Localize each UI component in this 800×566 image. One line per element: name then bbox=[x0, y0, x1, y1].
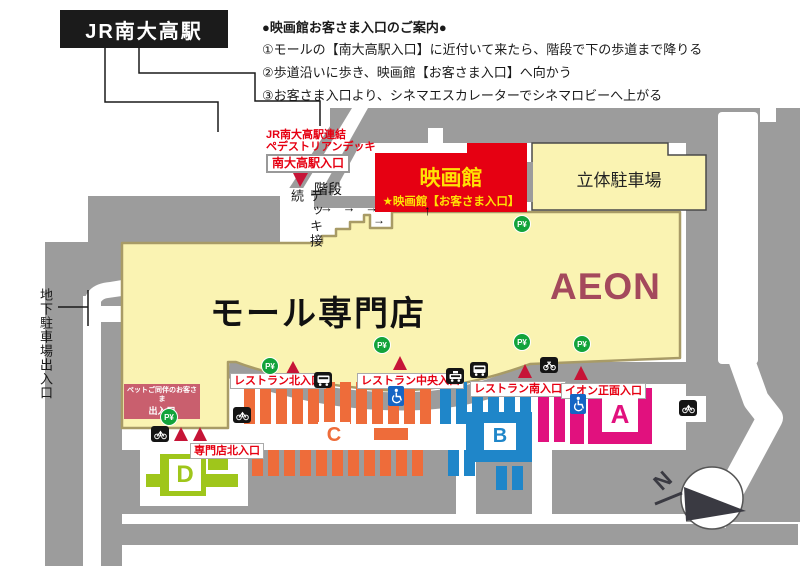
zone-c-label: C bbox=[318, 422, 350, 448]
bicycle-parking-icon bbox=[151, 426, 169, 442]
paid-parking-icon: P¥ bbox=[513, 215, 531, 233]
motorcycle-parking-icon bbox=[540, 357, 558, 373]
guide-title: ●映画館お客さま入口のご案内● bbox=[262, 17, 447, 36]
garage-label: 立体駐車場 bbox=[532, 166, 706, 191]
paid-parking-icon: P¥ bbox=[160, 408, 178, 426]
station-name: JR南大高駅 bbox=[85, 15, 203, 44]
pet-entrance-line1: ペットご同伴のお客さま bbox=[125, 386, 199, 405]
zone-a-label: A bbox=[602, 396, 638, 432]
wheelchair-access-icon bbox=[570, 394, 586, 414]
mall-access-map: JR南大高駅 ●映画館お客さま入口のご案内● ①モールの【南大高駅入口】に近付い… bbox=[0, 0, 800, 566]
cinema-name: 映画館 bbox=[375, 162, 527, 192]
specialty-north-entrance-label: 専門店北入口 bbox=[190, 443, 264, 459]
guide-step-2: ②歩道沿いに歩き、映画館【お客さま入口】へ向かう bbox=[262, 62, 572, 81]
paid-parking-icon: P¥ bbox=[261, 357, 279, 375]
guide-step-3: ③お客さま入口より、シネマエスカレーターでシネマロビーへ上がる bbox=[262, 85, 662, 104]
entrance-notch-arrow: → bbox=[373, 213, 385, 227]
station-entrance-label: 南大高駅入口 bbox=[266, 154, 350, 173]
deck-label-line2: ペデストリアンデッキ bbox=[266, 141, 376, 154]
paid-parking-icon: P¥ bbox=[513, 333, 531, 351]
restaurant-north-entrance-label: レストラン北入口 bbox=[230, 373, 326, 389]
mall-label: モール専門店 bbox=[210, 286, 426, 335]
bicycle-parking-icon bbox=[233, 407, 251, 423]
underground-parking-label: 地下駐車場出入口 bbox=[36, 288, 55, 408]
taxi-stand-icon bbox=[446, 368, 464, 384]
station-label-box: JR南大高駅 bbox=[60, 10, 228, 48]
wheelchair-access-icon bbox=[388, 386, 404, 406]
bicycle-parking-icon bbox=[679, 400, 697, 416]
zone-d-label: D bbox=[169, 459, 201, 491]
deck-connection-label: デッキ接続 bbox=[287, 189, 325, 251]
paid-parking-icon: P¥ bbox=[373, 336, 391, 354]
guide-step-1: ①モールの【南大高駅入口】に近付いて来たら、階段で下の歩道まで降りる bbox=[262, 39, 702, 58]
bus-stop-icon bbox=[470, 362, 488, 378]
zone-b-label: B bbox=[484, 423, 516, 450]
paid-parking-icon: P¥ bbox=[573, 335, 591, 353]
cinema-entrance-label: ★映画館【お客さま入口】 bbox=[375, 193, 527, 209]
bus-stop-icon bbox=[314, 372, 332, 388]
aeon-label: AEON bbox=[550, 266, 661, 308]
restaurant-south-entrance-label: レストラン南入口 bbox=[470, 381, 566, 397]
